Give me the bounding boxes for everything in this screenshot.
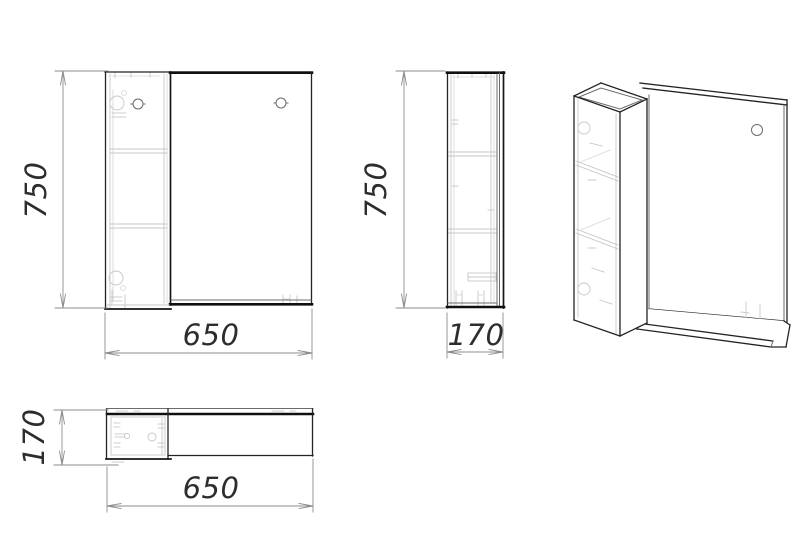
isometric-mirror-panel <box>640 83 787 322</box>
plan-view-outline <box>106 409 313 460</box>
side-height-dimension-label: 750 <box>359 162 393 219</box>
screw-hole-marker <box>148 433 156 441</box>
drawing-svg: 750 650 <box>0 0 800 547</box>
side-view-details <box>448 73 497 306</box>
side-depth-dimension: 170 <box>447 313 504 358</box>
front-width-dimension-label: 650 <box>183 318 240 352</box>
front-height-dimension: 750 <box>19 71 108 308</box>
side-height-dimension: 750 <box>359 71 445 308</box>
front-view-outline <box>105 72 312 309</box>
technical-drawing-sheet: 750 650 <box>0 0 800 547</box>
plan-view: 170 650 <box>17 409 313 513</box>
side-view: 750 170 <box>359 71 504 358</box>
front-height-dimension-label: 750 <box>19 162 53 219</box>
front-view: 750 650 <box>19 71 312 359</box>
plan-depth-dimension-label: 170 <box>17 409 51 466</box>
plan-width-dimension-label: 650 <box>183 471 240 505</box>
plan-view-details <box>111 411 296 462</box>
screw-hole-marker <box>133 99 143 109</box>
isometric-view <box>574 83 790 347</box>
plan-width-dimension: 650 <box>107 459 313 512</box>
hinge-cup-marker <box>109 271 123 285</box>
front-view-shelf-column-details <box>109 73 297 308</box>
mirror-hole-marker <box>276 98 286 108</box>
front-width-dimension: 650 <box>105 309 312 359</box>
isometric-shelf-column <box>574 83 647 336</box>
hinge-cup-marker <box>110 96 124 110</box>
side-depth-dimension-label: 170 <box>448 318 505 352</box>
plan-depth-dimension: 170 <box>17 409 118 466</box>
